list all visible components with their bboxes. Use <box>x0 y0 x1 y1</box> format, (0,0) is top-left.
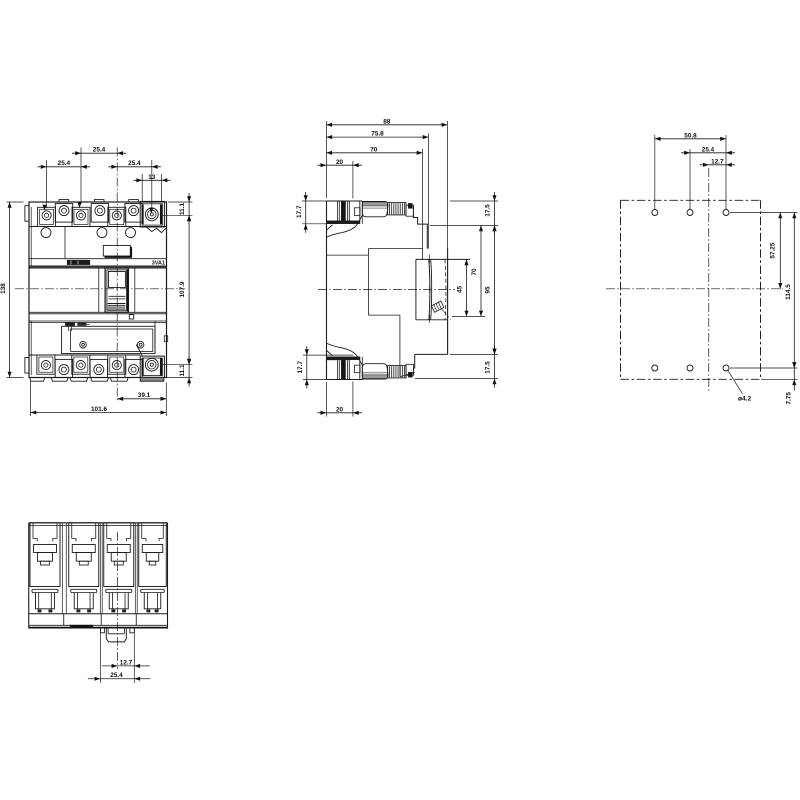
svg-text:25.4: 25.4 <box>702 146 715 153</box>
svg-text:25.4: 25.4 <box>110 672 123 679</box>
svg-text:50.8: 50.8 <box>684 132 697 139</box>
svg-text:17.5: 17.5 <box>484 361 491 374</box>
svg-text:12.7: 12.7 <box>120 659 133 666</box>
svg-text:20: 20 <box>336 159 344 166</box>
svg-text:138: 138 <box>0 283 7 294</box>
svg-text:107.9: 107.9 <box>179 281 186 297</box>
svg-text:25.4: 25.4 <box>58 160 71 167</box>
svg-text:ø4.2: ø4.2 <box>738 395 752 402</box>
svg-text:17.7: 17.7 <box>297 361 304 374</box>
svg-text:17.7: 17.7 <box>296 205 303 218</box>
svg-text:11.1: 11.1 <box>179 364 186 377</box>
svg-text:3VA1: 3VA1 <box>152 261 165 267</box>
svg-text:95: 95 <box>485 286 492 294</box>
svg-text:57.25: 57.25 <box>770 242 777 258</box>
svg-text:70: 70 <box>471 268 478 276</box>
svg-text:25.4: 25.4 <box>93 147 106 154</box>
svg-text:70: 70 <box>370 146 378 153</box>
svg-text:75.8: 75.8 <box>371 131 384 138</box>
svg-text:45: 45 <box>457 286 464 294</box>
svg-text:7.75: 7.75 <box>785 392 792 405</box>
svg-text:12.7: 12.7 <box>711 158 724 165</box>
svg-text:20: 20 <box>336 406 344 413</box>
svg-text:114.5: 114.5 <box>785 284 792 300</box>
svg-text:88: 88 <box>383 118 391 125</box>
svg-text:101.6: 101.6 <box>91 406 107 413</box>
svg-text:39.1: 39.1 <box>138 392 151 399</box>
svg-text:25.4: 25.4 <box>128 160 141 167</box>
svg-text:11.1: 11.1 <box>179 203 186 216</box>
svg-text:17.5: 17.5 <box>484 204 491 217</box>
